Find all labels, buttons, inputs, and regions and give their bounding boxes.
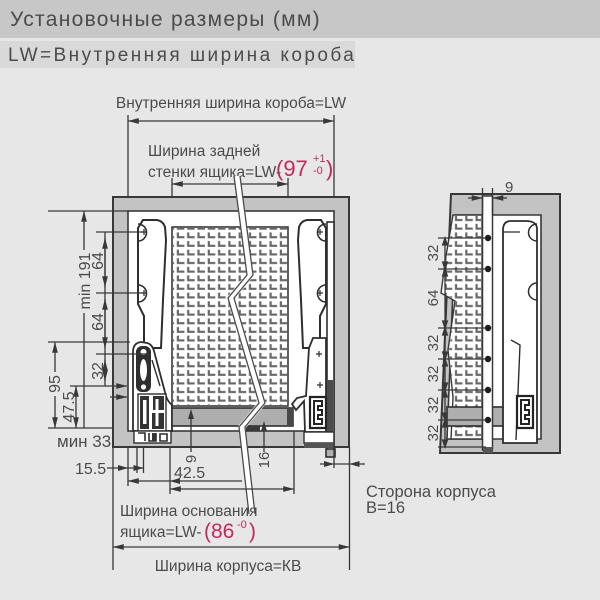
svg-text:Установочные размеры (мм): Установочные размеры (мм) [10,8,321,31]
svg-text:9: 9 [505,179,513,196]
svg-text:+1: +1 [313,153,326,165]
svg-text:Ширина задней: Ширина задней [148,143,260,160]
svg-text:Ширина корпуса=КВ: Ширина корпуса=КВ [155,558,302,575]
svg-text:9: 9 [183,455,200,463]
svg-text:64: 64 [425,290,442,307]
svg-text:32: 32 [425,245,442,262]
svg-text:мин 33: мин 33 [57,432,111,451]
svg-text:-0: -0 [313,165,323,177]
svg-text:стенки ящика=LW-: стенки ящика=LW- [148,164,281,181]
svg-text:32: 32 [425,335,442,352]
svg-text:-0: -0 [237,519,247,531]
svg-text:64: 64 [90,313,107,331]
svg-text:LW=Внутренняя ширина короба: LW=Внутренняя ширина короба [8,45,356,66]
svg-text:ящика=LW-: ящика=LW- [120,524,202,541]
svg-text:): ) [326,156,333,181]
svg-text:32: 32 [425,425,442,442]
svg-text:(86: (86 [204,520,234,543]
svg-text:64: 64 [90,252,107,270]
svg-text:(97: (97 [276,156,308,181]
svg-text:16: 16 [256,452,273,469]
svg-text:): ) [249,520,256,543]
svg-text:42.5: 42.5 [174,465,205,482]
svg-text:Внутренняя ширина короба=LW: Внутренняя ширина короба=LW [116,95,347,112]
svg-text:95: 95 [47,375,64,393]
svg-text:47.5: 47.5 [61,391,78,422]
svg-text:Ширина основания: Ширина основания [120,503,257,520]
svg-text:32: 32 [90,362,107,380]
svg-text:B=16: B=16 [366,499,405,517]
svg-text:32: 32 [425,366,442,383]
svg-text:32: 32 [425,397,442,414]
svg-text:15.5: 15.5 [75,461,106,478]
